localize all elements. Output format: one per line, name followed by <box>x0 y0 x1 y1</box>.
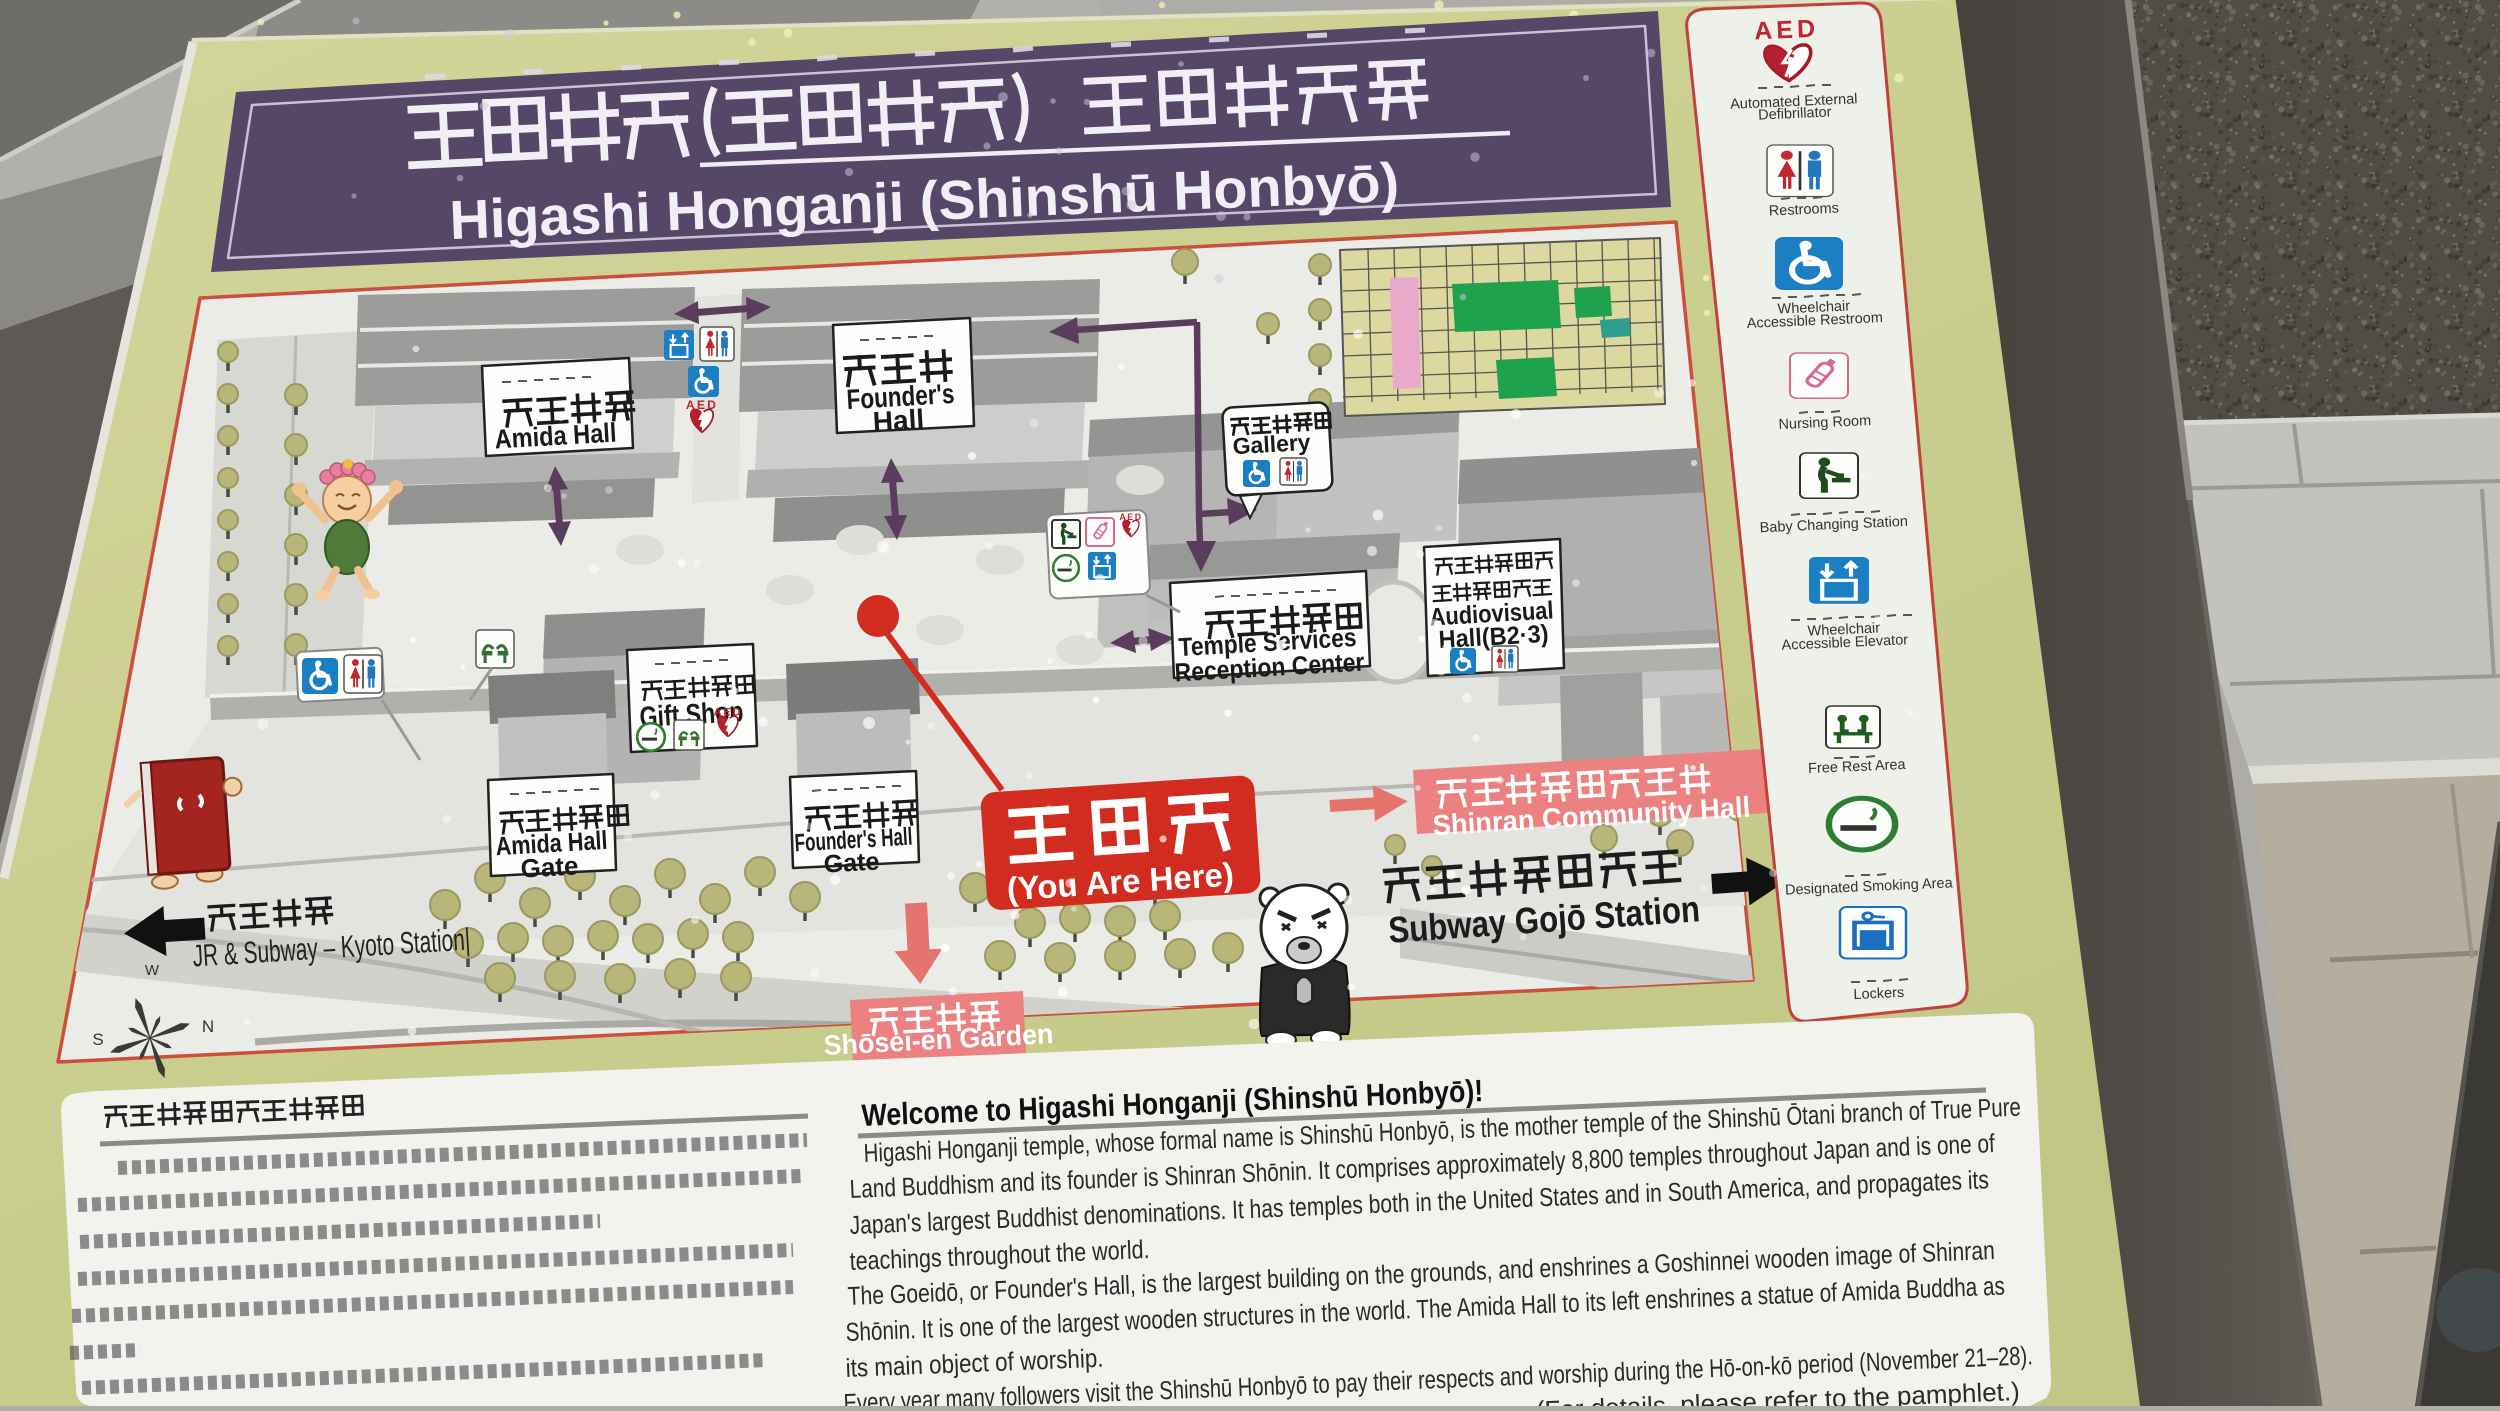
svg-text:Hall: Hall <box>872 404 925 438</box>
svg-text:Restrooms: Restrooms <box>1768 200 1839 219</box>
svg-text:AED: AED <box>1119 512 1142 522</box>
svg-text:W: W <box>145 962 160 979</box>
svg-text:AED: AED <box>1754 15 1820 46</box>
svg-text:Defibrillator: Defibrillator <box>1758 104 1832 123</box>
svg-text:S: S <box>92 1030 103 1049</box>
svg-text:AED: AED <box>714 707 743 719</box>
svg-text:Gate: Gate <box>823 847 880 878</box>
svg-text:AED: AED <box>686 398 718 412</box>
svg-text:Lockers: Lockers <box>1853 985 1904 1003</box>
svg-text:N: N <box>202 1017 214 1036</box>
svg-text:Gallery: Gallery <box>1232 429 1312 459</box>
svg-text:Gate: Gate <box>520 850 579 883</box>
